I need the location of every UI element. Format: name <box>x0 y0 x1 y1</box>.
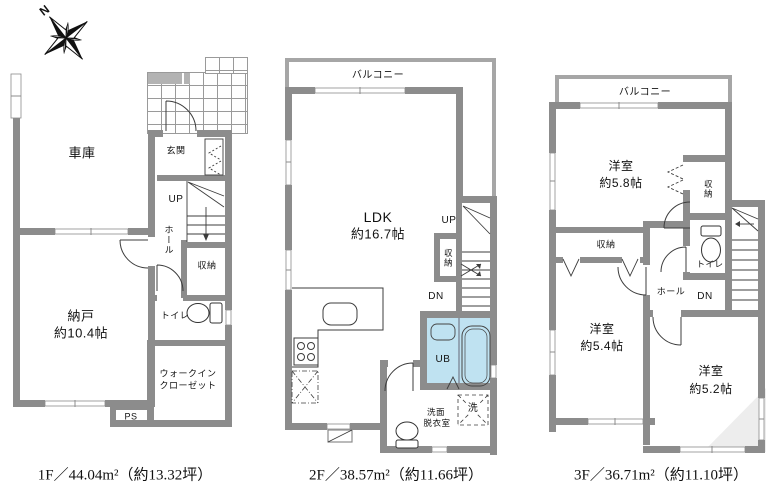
toilet-icon <box>396 422 418 448</box>
ldk-label: LDK <box>364 210 393 224</box>
refrigerator-space <box>292 371 318 403</box>
balcony-label-3f: バルコニー <box>619 88 671 98</box>
dn-label-2f: DN <box>428 292 443 302</box>
storage-h-label-3f: 収納 <box>596 241 615 250</box>
room58-label: 洋室 <box>608 160 633 172</box>
up-label-2f: UP <box>442 216 457 226</box>
up-label-1f: UP <box>169 195 184 205</box>
stairs-1f <box>187 181 225 242</box>
storage-label-3f: 収納 <box>704 180 713 199</box>
storage-label-2f: 収納 <box>444 249 453 268</box>
room52-area-label: 約5.2帖 <box>689 383 732 395</box>
outdoor-step <box>328 430 352 442</box>
unit-bath-label: UB <box>436 355 451 365</box>
floor-3f-plan <box>549 75 766 453</box>
floorplan-page: N <box>0 0 783 489</box>
laundry-label: 洗 <box>467 404 480 414</box>
toilet-label-3f: トイレ <box>696 260 723 269</box>
dn-label-3f: DN <box>697 292 712 302</box>
watermark <box>703 388 766 452</box>
stove-icon <box>294 338 318 365</box>
kitchen-counter <box>292 288 383 367</box>
genkan-label: 玄関 <box>166 147 185 156</box>
toilet-icon <box>701 226 721 262</box>
folding-door <box>668 165 683 194</box>
storage-label-1f: 収納 <box>197 262 216 271</box>
toilet-icon <box>187 303 222 323</box>
door-arc <box>385 363 413 391</box>
stairs-3f <box>732 208 758 300</box>
ps-label: PS <box>124 413 137 422</box>
sink-icon <box>323 303 357 325</box>
balcony-label-2f: バルコニー <box>352 71 404 81</box>
floor-2f-plan <box>285 58 497 455</box>
hall-label-1f: ホール <box>164 225 173 255</box>
floor-2f-caption: 2F／38.57m²（約11.66坪） <box>309 464 483 485</box>
wic-label-line2: クローゼット <box>159 382 216 391</box>
washroom-label-line2: 脱衣室 <box>423 419 450 428</box>
room54-area-label: 約5.4帖 <box>580 340 623 352</box>
stairs-2f <box>461 206 490 306</box>
toilet-label-1f: トイレ <box>161 312 190 321</box>
nando-area-label: 約10.4帖 <box>54 327 108 340</box>
wic-label-line1: ウォークイン <box>159 370 216 379</box>
compass-icon: N <box>19 0 104 76</box>
shoe-cabinet <box>205 139 223 175</box>
compass-north-label: N <box>37 2 52 18</box>
floor-3f-caption: 3F／36.71m²（約11.10坪） <box>574 464 748 485</box>
floor-1f-caption: 1F／44.04m²（約13.32坪） <box>38 464 213 485</box>
room58-area-label: 約5.8帖 <box>599 177 642 189</box>
garage-label: 車庫 <box>68 147 95 160</box>
room54-label: 洋室 <box>589 323 614 335</box>
hall-label-3f: ホール <box>657 288 686 297</box>
nando-label: 納戸 <box>67 310 94 323</box>
ldk-area-label: 約16.7帖 <box>351 228 405 241</box>
washroom-label-line1: 洗面 <box>427 408 445 417</box>
room52-label: 洋室 <box>698 365 723 377</box>
